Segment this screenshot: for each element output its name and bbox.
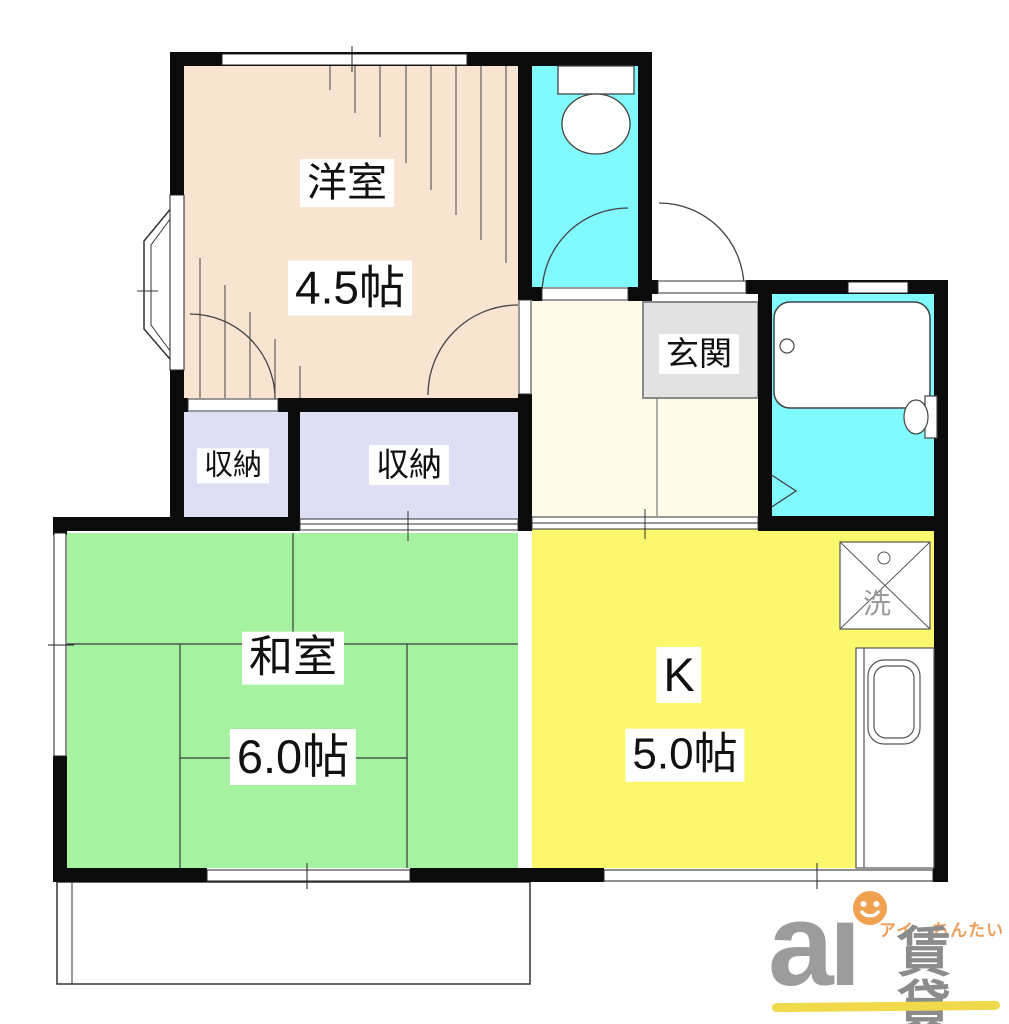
toilet-bowl: [562, 94, 630, 154]
toilet-tank: [558, 66, 634, 94]
bathtub-drain: [780, 339, 794, 353]
closet-door: [188, 399, 278, 411]
window-bay-opening: [170, 195, 184, 370]
window-bath-top: [848, 282, 908, 293]
western-room-door: [519, 300, 531, 394]
toilet-door: [542, 288, 628, 300]
label-kitchen-size: 5.0帖: [625, 729, 744, 782]
floorplan-page: 洋室 4.5帖 収納 収納 玄関 和室 6.0帖 K 5.0帖 洗 aı アイ・…: [0, 0, 1009, 1024]
front-door: [658, 281, 746, 293]
bathtub: [774, 302, 930, 408]
label-japanese-room: 和室: [242, 632, 344, 685]
label-kitchen-room: K: [656, 647, 701, 703]
bathtub-fixture: [774, 302, 930, 408]
window-japanese-bottom: [207, 870, 410, 881]
room-western-floor: [184, 66, 518, 398]
label-western-size: 4.5帖: [288, 261, 412, 316]
window-western-top: [222, 54, 467, 65]
label-entrance: 玄関: [659, 334, 739, 374]
front-door-arc: [659, 203, 744, 288]
balcony: [57, 882, 530, 984]
toilet-fixture: [558, 66, 634, 154]
kitchen-sink-counter: [856, 648, 934, 868]
logo-wordmark: aı: [768, 886, 856, 1004]
label-laundry-pan: 洗: [856, 587, 898, 621]
label-western-room: 洋室: [300, 159, 394, 207]
floorplan-drawing: [0, 0, 1009, 1024]
label-storage-large: 収納: [369, 445, 449, 485]
label-storage-small: 収納: [197, 448, 269, 483]
label-japanese-size: 6.0帖: [230, 729, 356, 785]
